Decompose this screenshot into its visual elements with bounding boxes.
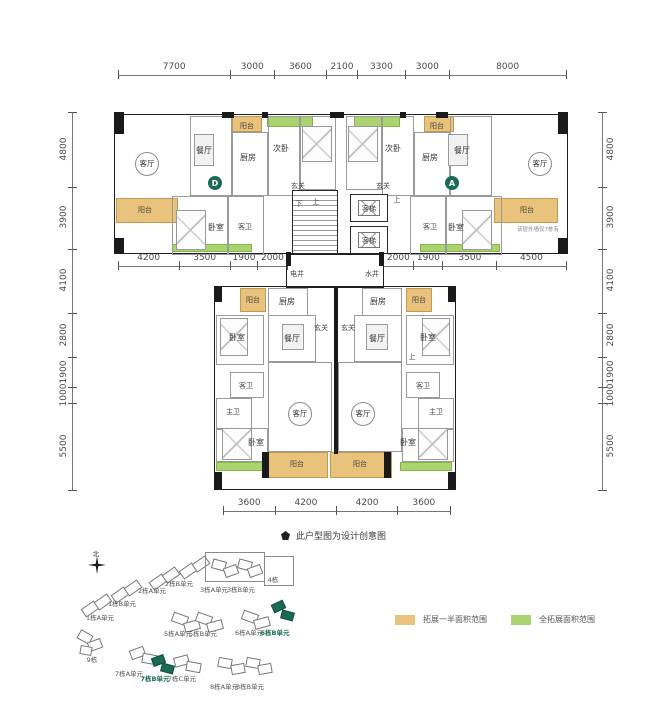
floor-plan-page: 7700300036002100330030008000420035001900… [0,0,670,725]
site-building-label: 4栋 [247,574,299,584]
compass-icon [88,556,106,574]
site-building-label: 8栋B单元 [224,681,276,691]
site-building-label: 6栋B单元 [249,627,301,637]
north-label: 北 [86,548,106,558]
site-building-block [185,661,202,673]
site-building-label: 1栋A单元 [74,612,126,622]
site-building-block [257,663,273,675]
legend: 拓展一半面积范围 全拓展面积范围 [395,614,595,625]
site-building-block [280,609,295,621]
full-extension-label: 全拓展面积范围 [539,614,595,625]
legend-item-half-extension: 拓展一半面积范围 [395,614,487,625]
legend-item-full-extension: 全拓展面积范围 [511,614,595,625]
site-building-label: 1栋B单元 [96,598,148,608]
full-extension-swatch [511,615,531,625]
site-building-label: 5栋B单元 [177,628,229,638]
site-building-label: 9栋 [66,654,118,664]
site-building-label: 3栋B单元 [215,584,267,594]
half-extension-swatch [395,615,415,625]
site-building-block [230,663,246,675]
half-extension-label: 拓展一半面积范围 [423,614,487,625]
